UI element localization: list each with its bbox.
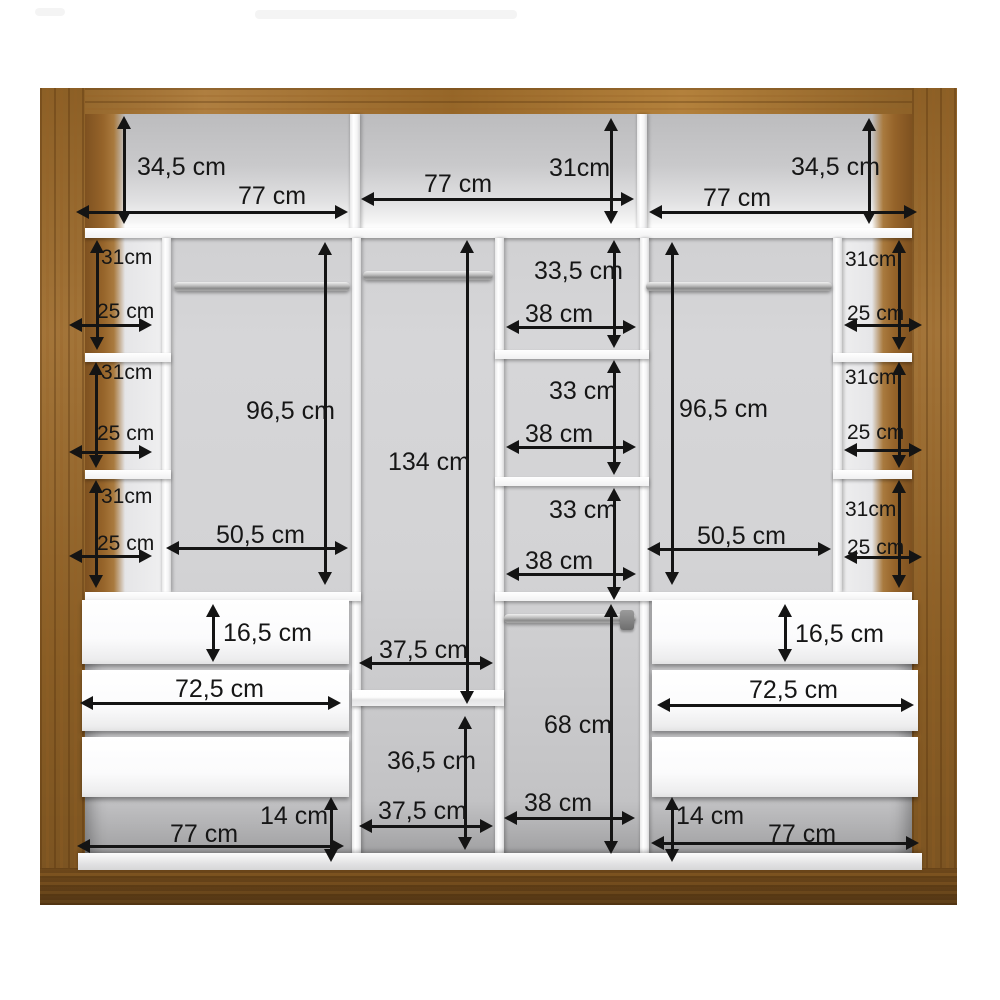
dim-label-left-cell1-depth: 25 cm [97,301,154,322]
top-divider-left [350,114,360,238]
dim-label-mid-cell3-height: 33 cm [549,498,617,523]
dim-label-left-drawer-height: 16,5 cm [223,621,312,646]
dim-label-left-cell3-height: 31cm [101,486,152,507]
divider-right-column [833,238,842,592]
left-drawer-3 [82,737,349,797]
dim-label-top-left-width: 77 cm [238,184,306,209]
dim-arrow-right-drawer-height [777,604,793,662]
dim-label-mid-cell2-height: 33 cm [549,379,617,404]
left-column-shelf-2 [85,470,171,479]
right-drawer-3 [652,737,918,797]
wood-frame-right [912,88,957,905]
middle-column-shelf-2 [495,477,649,486]
dim-label-left-cell2-depth: 25 cm [97,423,154,444]
dim-label-mid-cell3-width: 38 cm [525,549,593,574]
dim-label-right-drawer-width: 72,5 cm [749,678,838,703]
dim-label-bottom-right-width: 77 cm [768,822,836,847]
dim-label-right-cell3-depth: 25 cm [847,537,904,558]
dim-label-bottom-left-clearance: 14 cm [260,804,328,829]
dim-label-right-hanging-width: 50,5 cm [697,524,786,549]
divider-middle-left [495,238,504,854]
dim-label-right-cell1-height: 31cm [845,249,896,270]
dim-arrow-right-cell3-height [891,480,907,588]
divider-left-column [162,238,171,592]
dim-arrow-top-left-width [76,204,348,220]
dim-label-mid-cell1-height: 33,5 cm [534,259,623,284]
dim-label-left-hanging-height: 96,5 cm [246,399,335,424]
dim-label-bottom-right-clearance: 14 cm [676,804,744,829]
rod-bracket [620,610,634,630]
dim-label-top-right-width: 77 cm [703,186,771,211]
dim-label-middle-tall-height: 134 cm [388,450,470,475]
dim-label-right-hanging-height: 96,5 cm [679,397,768,422]
dim-label-left-drawer-width: 72,5 cm [175,677,264,702]
dim-label-bottom-hanging-height: 68 cm [544,713,612,738]
right-column-shelf-2 [833,470,912,479]
dim-arrow-left-cell2-depth [69,444,152,460]
dim-arrow-left-drawer-height [205,604,221,662]
wood-frame-base [40,868,957,905]
dim-label-bottom-left-width: 77 cm [170,822,238,847]
dim-arrow-right-cell2-depth [844,442,922,458]
background-smudge [35,8,65,16]
wardrobe-floor-panel [78,853,922,870]
right-column-shelf-1 [833,353,912,362]
dim-label-top-right-height: 34,5 cm [791,155,880,180]
dim-label-bottom-hanging-width: 38 cm [524,791,592,816]
dim-label-mid-cell1-width: 38 cm [525,302,593,327]
wood-frame-top [40,88,957,116]
dim-label-top-middle-width: 77 cm [424,172,492,197]
dim-label-right-cell3-height: 31cm [845,499,896,520]
main-top-shelf [85,228,912,238]
middle-column-shelf-1 [495,350,649,359]
dim-arrow-right-hanging-height [664,242,680,585]
dim-label-middle-bottom-height: 36,5 cm [387,749,476,774]
dim-label-top-middle-height: 31cm [549,156,610,181]
dim-label-left-cell1-height: 31cm [101,247,152,268]
top-divider-right [637,114,647,238]
dim-arrow-top-middle-width [361,191,634,207]
dim-label-right-cell2-height: 31cm [845,367,896,388]
dim-label-left-cell3-depth: 25 cm [97,533,154,554]
dim-label-right-cell1-depth: 25 cm [847,303,904,324]
dim-label-mid-cell2-width: 38 cm [525,422,593,447]
dim-label-top-left-height: 34,5 cm [137,155,226,180]
dim-label-left-hanging-width: 50,5 cm [216,523,305,548]
dim-label-left-cell2-height: 31cm [101,362,152,383]
dim-label-middle-bottom-width: 37,5 cm [378,799,467,824]
dim-label-right-cell2-depth: 25 cm [847,422,904,443]
dim-label-middle-tall-width: 37,5 cm [379,638,468,663]
dim-label-right-drawer-height: 16,5 cm [795,622,884,647]
background-smudge [255,10,517,19]
middle-bottom-shelf [352,690,504,706]
divider-left-main [352,238,361,854]
